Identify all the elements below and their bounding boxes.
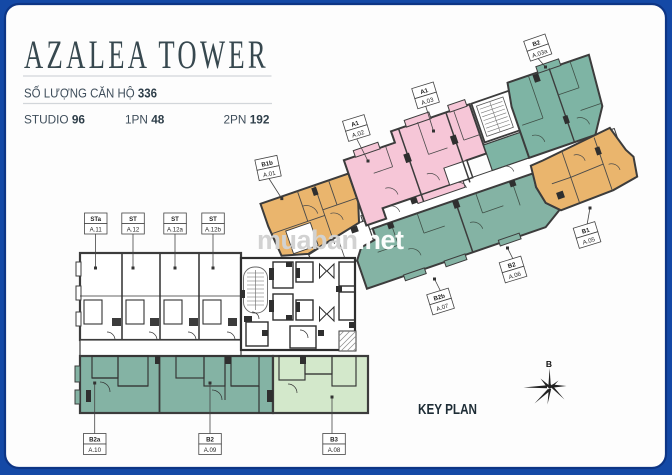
- svg-text:SỐ LƯỢNG CĂN HỘ 336: SỐ LƯỢNG CĂN HỘ 336: [24, 86, 157, 101]
- svg-text:B3: B3: [330, 437, 338, 444]
- svg-text:A.12b: A.12b: [205, 227, 222, 234]
- svg-text:B: B: [546, 359, 552, 369]
- svg-text:1PN 48: 1PN 48: [125, 113, 165, 127]
- svg-text:B2a: B2a: [89, 437, 101, 444]
- svg-text:STUDIO 96: STUDIO 96: [24, 113, 85, 127]
- svg-text:2PN 192: 2PN 192: [224, 113, 270, 127]
- svg-text:AZALEA TOWER: AZALEA TOWER: [24, 32, 269, 77]
- svg-text:KEY PLAN: KEY PLAN: [418, 402, 477, 418]
- svg-text:A.12: A.12: [127, 227, 140, 234]
- svg-text:B2: B2: [206, 437, 214, 444]
- svg-text:ST: ST: [209, 216, 217, 223]
- svg-text:A.11: A.11: [90, 227, 103, 234]
- svg-text:STa: STa: [90, 216, 101, 223]
- svg-text:A.10: A.10: [88, 447, 101, 454]
- svg-text:A.12a: A.12a: [167, 227, 184, 234]
- svg-text:A.09: A.09: [204, 447, 217, 454]
- svg-text:muaban.net: muaban.net: [257, 225, 404, 255]
- svg-text:A.08: A.08: [328, 447, 341, 454]
- svg-text:ST: ST: [129, 216, 137, 223]
- svg-text:ST: ST: [171, 216, 179, 223]
